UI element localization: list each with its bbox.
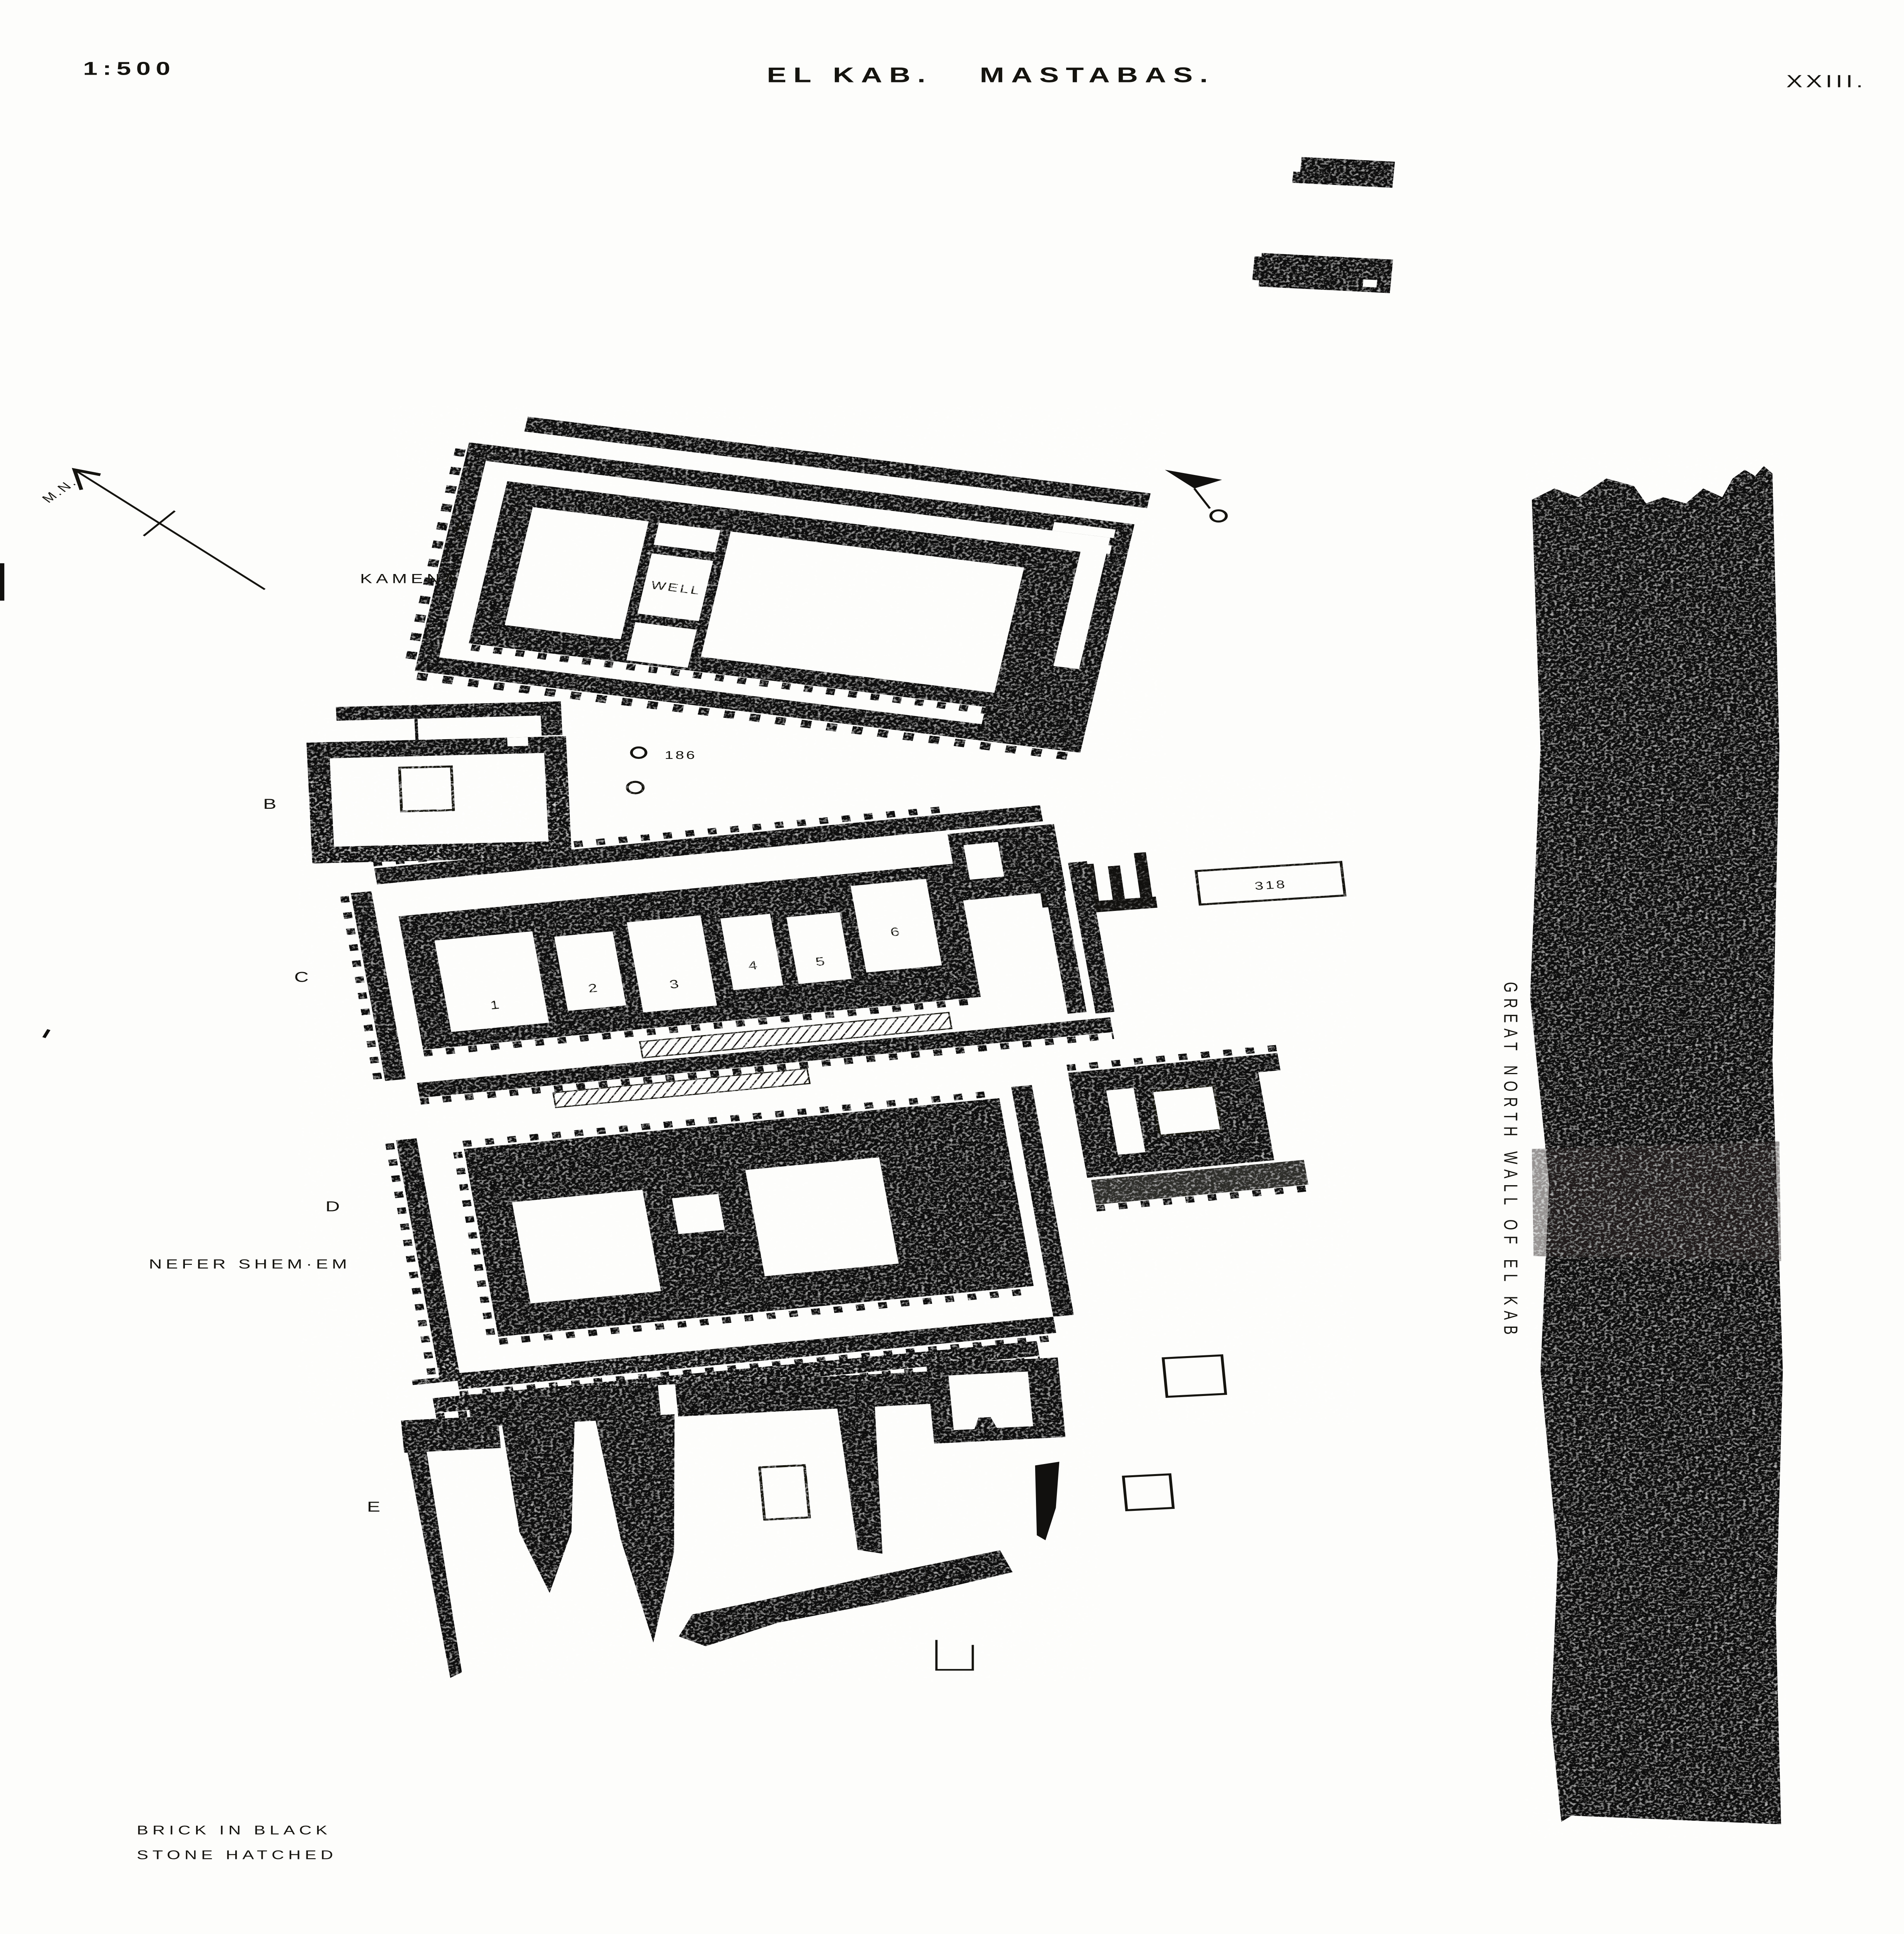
wall-fragment-upper (1292, 157, 1395, 188)
mastaba-c-d-complex: 1 2 3 4 5 6 (318, 782, 1335, 1418)
eroded-fragment-east (1035, 1462, 1060, 1540)
mastaba-d-room-east (745, 1157, 899, 1276)
scanned-plate-page: 1:500 EL KAB. MASTABAS. XXIII. M.N. GREA… (0, 0, 1904, 1934)
eroded-wall-a (502, 1422, 591, 1595)
north-arrow: M.N. (39, 470, 265, 589)
eroded-spike (408, 1451, 463, 1679)
tomb-318-number: 318 (1254, 878, 1288, 892)
mastaba-c-key: C (294, 969, 311, 985)
wall-fragment-lower (1252, 253, 1393, 293)
tomb-318: 318 (1196, 862, 1345, 904)
mastaba-b-key: B (263, 796, 278, 812)
mastaba-e (398, 1358, 1086, 1679)
mastaba-d-room-west (512, 1190, 661, 1304)
eroded-wall-c (837, 1402, 889, 1555)
scale-label: 1:500 (83, 58, 176, 79)
mastaba-c-west-wall (351, 891, 406, 1081)
great-wall-caption: GREAT NORTH WALL OF EL KAB (1500, 982, 1521, 1340)
page-edge-mark (0, 563, 4, 601)
great-north-wall (1530, 466, 1783, 1825)
plan-drawing: 1:500 EL KAB. MASTABAS. XXIII. M.N. GREA… (0, 0, 1904, 1934)
mastaba-c-room-1 (434, 931, 549, 1032)
mastaba-east-of-d (1067, 1047, 1309, 1209)
isolated-shaft-1 (1163, 1355, 1225, 1397)
pit-number-186: 186 (665, 749, 697, 761)
mastaba-a-owner: KAMENA (360, 571, 460, 586)
mastaba-a-key: A (453, 519, 468, 535)
legend-stone: STONE HATCHED (137, 1849, 337, 1862)
pit-circle-186 (631, 747, 646, 758)
survey-arrow-a (1165, 470, 1226, 522)
page-subtitle: MASTABAS. (980, 63, 1215, 87)
plate-number: XXIII. (1786, 72, 1866, 91)
legend-brick: BRICK IN BLACK (137, 1823, 331, 1837)
page-title: EL KAB. (767, 63, 932, 87)
eroded-south-wall (672, 1550, 1018, 1648)
pit-circle-b (627, 782, 643, 793)
stone-shaft-e (759, 1465, 809, 1520)
isolated-shaft-2 (1123, 1474, 1173, 1510)
niche-structure (926, 1358, 1065, 1444)
open-shaft-mark (937, 1640, 973, 1670)
stray-mark (42, 1029, 50, 1038)
mastaba-d-owner: NEFER SHEM·EM (149, 1257, 351, 1271)
stone-shaft-outline (1152, 1085, 1222, 1136)
eroded-wall-b (595, 1414, 696, 1644)
mastaba-b (305, 701, 572, 863)
north-label: M.N. (39, 476, 81, 505)
mastaba-b-stone-shaft (400, 767, 454, 812)
pit-circle-a (1211, 510, 1226, 521)
mastaba-d-key: D (325, 1198, 342, 1215)
mastaba-d-shaft (672, 1194, 725, 1234)
mastaba-e-key: E (367, 1498, 382, 1515)
